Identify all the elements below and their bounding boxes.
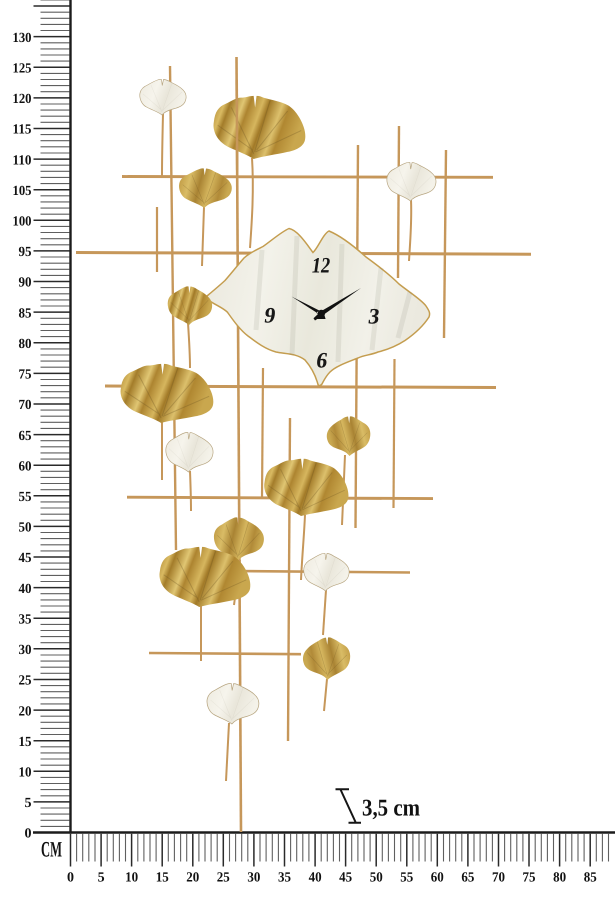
svg-text:65: 65	[461, 871, 474, 886]
svg-text:105: 105	[13, 184, 32, 199]
svg-text:75: 75	[19, 368, 32, 383]
svg-text:5: 5	[25, 796, 32, 811]
svg-text:40: 40	[19, 582, 32, 597]
svg-text:45: 45	[339, 871, 352, 886]
svg-text:15: 15	[19, 735, 32, 750]
svg-text:3,5 cm: 3,5 cm	[362, 796, 420, 822]
svg-text:40: 40	[309, 871, 322, 886]
svg-text:30: 30	[19, 643, 32, 658]
svg-text:110: 110	[13, 153, 32, 168]
svg-text:80: 80	[19, 337, 32, 352]
svg-text:60: 60	[19, 459, 32, 474]
svg-text:CM: CM	[41, 837, 62, 862]
svg-text:20: 20	[19, 704, 32, 719]
svg-text:45: 45	[19, 551, 32, 566]
svg-text:5: 5	[98, 871, 105, 886]
svg-text:125: 125	[13, 62, 32, 77]
svg-text:25: 25	[217, 871, 230, 886]
svg-text:70: 70	[492, 871, 505, 886]
svg-text:35: 35	[278, 871, 291, 886]
svg-text:90: 90	[19, 276, 32, 291]
svg-text:35: 35	[19, 612, 32, 627]
svg-text:65: 65	[19, 429, 32, 444]
svg-text:55: 55	[400, 871, 413, 886]
svg-text:120: 120	[13, 92, 32, 107]
svg-text:130: 130	[13, 31, 32, 46]
svg-text:95: 95	[19, 245, 32, 260]
svg-text:15: 15	[156, 871, 169, 886]
svg-text:70: 70	[19, 398, 32, 413]
svg-text:85: 85	[19, 306, 32, 321]
svg-text:50: 50	[19, 521, 32, 536]
svg-text:60: 60	[431, 871, 444, 886]
svg-text:85: 85	[584, 871, 597, 886]
svg-text:10: 10	[19, 766, 32, 781]
svg-text:30: 30	[247, 871, 260, 886]
svg-text:12: 12	[310, 253, 332, 278]
svg-text:80: 80	[553, 871, 566, 886]
svg-text:0: 0	[67, 871, 74, 886]
svg-text:25: 25	[19, 674, 32, 689]
svg-text:115: 115	[13, 123, 32, 138]
svg-text:50: 50	[370, 871, 383, 886]
svg-text:10: 10	[125, 871, 138, 886]
svg-text:0: 0	[25, 827, 32, 842]
svg-text:75: 75	[523, 871, 536, 886]
svg-text:20: 20	[186, 871, 199, 886]
svg-text:55: 55	[19, 490, 32, 505]
svg-text:100: 100	[13, 215, 32, 230]
